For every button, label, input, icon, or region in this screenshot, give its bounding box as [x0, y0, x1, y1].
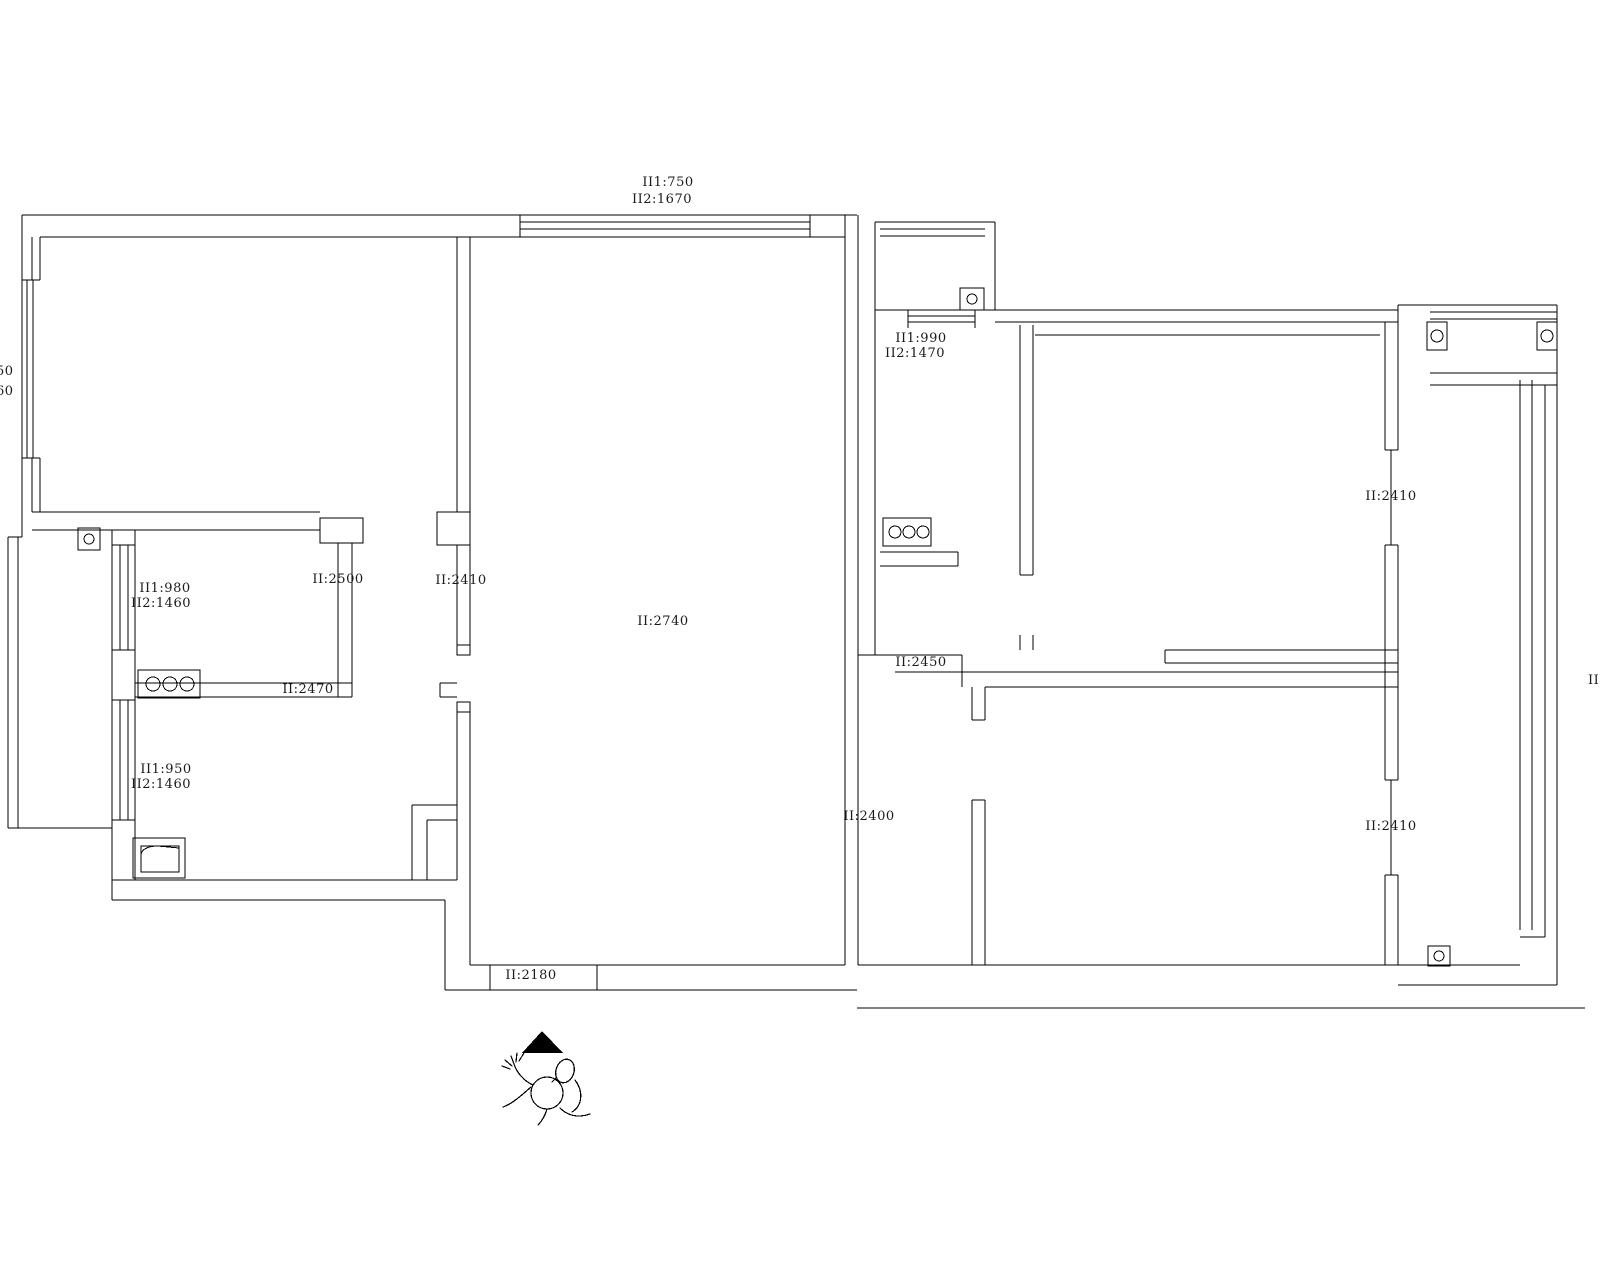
top-right-walls	[995, 310, 1398, 335]
cooktop-right-icon	[883, 518, 931, 546]
balcony-post-left-icon	[1427, 322, 1447, 350]
gas-meter-icon	[78, 528, 100, 550]
left-bay	[8, 537, 112, 828]
bedroom2-bottom-wall	[1165, 650, 1398, 663]
balcony-strip	[1398, 305, 1557, 985]
basin-icon	[133, 838, 185, 878]
drain-top-right-icon	[960, 288, 984, 310]
label-top-window-h2: II2:1670	[632, 193, 692, 207]
kitchen2-window	[908, 310, 975, 328]
balcony-post-right-icon	[1537, 322, 1557, 350]
north-arrow-icon	[522, 1031, 563, 1053]
living-left-wall	[457, 237, 470, 965]
left-wall-window	[22, 215, 40, 537]
bathroom-bottom-wall	[112, 880, 457, 900]
label-right-edge-clip: II	[1588, 674, 1599, 688]
label-kitchen2-window-h1: II1:990	[895, 332, 946, 346]
kitchen-bath-left-windows	[112, 530, 135, 880]
kitchen2-walls	[875, 310, 1033, 655]
drain-bottom-right-icon	[1428, 946, 1450, 966]
living-right-wall	[845, 215, 858, 965]
label-kitchen2-window-h2: II2:1470	[885, 347, 945, 361]
label-top-window-h1: II1:750	[642, 176, 693, 190]
label-kitchen1-window-h1: II1:980	[139, 582, 190, 596]
label-hall-opening-b: II:2450	[895, 656, 946, 670]
label-left-edge-clip-1: 50	[0, 365, 14, 379]
cooktop-left-icon	[138, 670, 200, 698]
top-walls	[22, 215, 857, 237]
label-bath-window-h2: II2:1460	[131, 778, 191, 792]
floor-plan-canvas: II1:750 II2:1670 50 60 II1:990 II2:1470 …	[0, 0, 1600, 1280]
kitchen1-right-wall	[338, 543, 352, 697]
label-hall-opening-c: II:2400	[843, 810, 894, 824]
person-figure-icon	[502, 1053, 590, 1125]
entry-steps	[412, 805, 457, 880]
label-kitchen-bath-wall: II:2470	[282, 683, 333, 697]
label-living-height: II:2740	[637, 615, 688, 629]
label-bath-window-h1: II1:950	[140, 763, 191, 777]
label-balcony-window-bottom: II:2410	[1365, 820, 1416, 834]
label-living-opening: II:2410	[435, 574, 486, 588]
floor-plan-drawing	[0, 0, 1600, 1280]
label-left-edge-clip-2: 60	[0, 385, 14, 399]
label-entry-opening: II:2180	[505, 969, 556, 983]
bottom-walls	[445, 900, 1585, 1008]
bedroom3-walls	[962, 672, 1398, 965]
label-kitchen1-window-h2: II2:1460	[131, 597, 191, 611]
label-kitchen1-opening: II:2500	[312, 573, 363, 587]
label-balcony-window-top: II:2410	[1365, 490, 1416, 504]
balcony-dividing-wall	[1385, 322, 1398, 965]
